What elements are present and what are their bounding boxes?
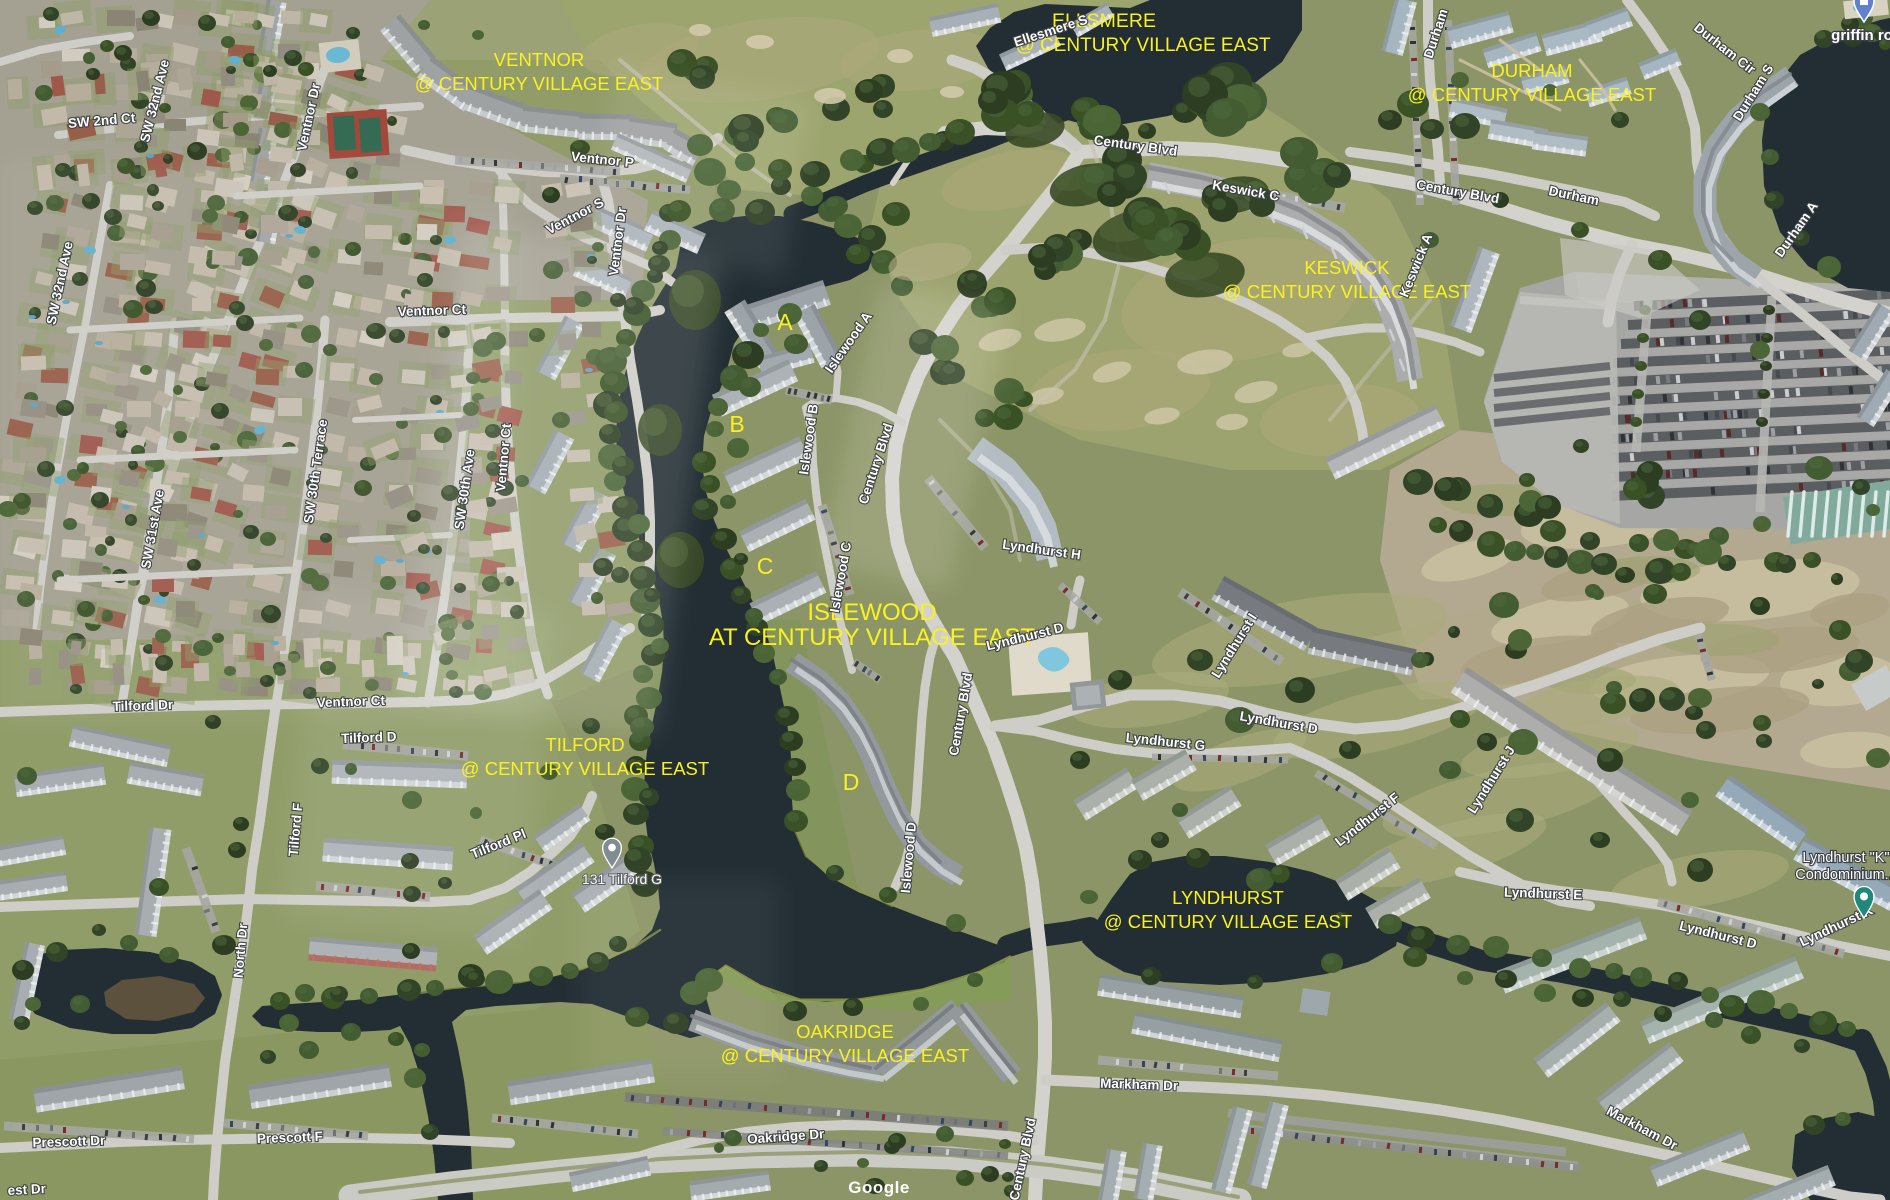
- svg-text:est Dr: est Dr: [7, 1181, 47, 1198]
- svg-text:@ CENTURY VILLAGE EAST: @ CENTURY VILLAGE EAST: [1223, 281, 1471, 302]
- svg-text:griffin ro: griffin ro: [1831, 27, 1890, 44]
- svg-text:Tilford D: Tilford D: [341, 729, 397, 746]
- svg-text:C: C: [757, 553, 774, 579]
- svg-text:B: B: [729, 411, 744, 437]
- svg-text:Prescott F: Prescott F: [257, 1129, 324, 1146]
- svg-text:131 Tilford G: 131 Tilford G: [582, 871, 662, 887]
- svg-text:D: D: [843, 769, 860, 795]
- svg-text:Prescott Dr: Prescott Dr: [32, 1133, 106, 1151]
- svg-text:OAKRIDGE: OAKRIDGE: [796, 1021, 894, 1042]
- svg-text:ISLEWOOD: ISLEWOOD: [807, 599, 936, 626]
- svg-text:Tilford Dr: Tilford Dr: [112, 697, 174, 714]
- svg-text:DURHAM: DURHAM: [1491, 60, 1572, 81]
- svg-text:LYNDHURST: LYNDHURST: [1172, 887, 1284, 908]
- svg-text:@ CENTURY VILLAGE EAST: @ CENTURY VILLAGE EAST: [1104, 911, 1352, 932]
- svg-text:A: A: [777, 309, 793, 335]
- svg-text:Ventnor Ct: Ventnor Ct: [397, 302, 466, 319]
- svg-text:Markham Dr: Markham Dr: [1100, 1076, 1179, 1094]
- svg-text:VENTNOR: VENTNOR: [494, 49, 584, 70]
- svg-text:Lyndhurst "K": Lyndhurst "K": [1802, 850, 1889, 866]
- svg-text:Lyndhurst E: Lyndhurst E: [1504, 885, 1583, 903]
- svg-text:@ CENTURY VILLAGE EAST: @ CENTURY VILLAGE EAST: [1408, 84, 1656, 105]
- svg-text:KESWICK: KESWICK: [1304, 257, 1390, 278]
- svg-text:Condominium...: Condominium...: [1795, 867, 1890, 883]
- svg-text:@ CENTURY VILLAGE EAST: @ CENTURY VILLAGE EAST: [1015, 35, 1271, 56]
- svg-text:@ CENTURY VILLAGE EAST: @ CENTURY VILLAGE EAST: [461, 758, 709, 779]
- svg-text:Ventnor Ct: Ventnor Ct: [316, 693, 385, 710]
- svg-text:Google: Google: [848, 1178, 910, 1197]
- svg-text:@ CENTURY VILLAGE EAST: @ CENTURY VILLAGE EAST: [415, 73, 663, 94]
- svg-text:@ CENTURY VILLAGE EAST: @ CENTURY VILLAGE EAST: [721, 1045, 969, 1066]
- svg-text:TILFORD: TILFORD: [545, 734, 624, 755]
